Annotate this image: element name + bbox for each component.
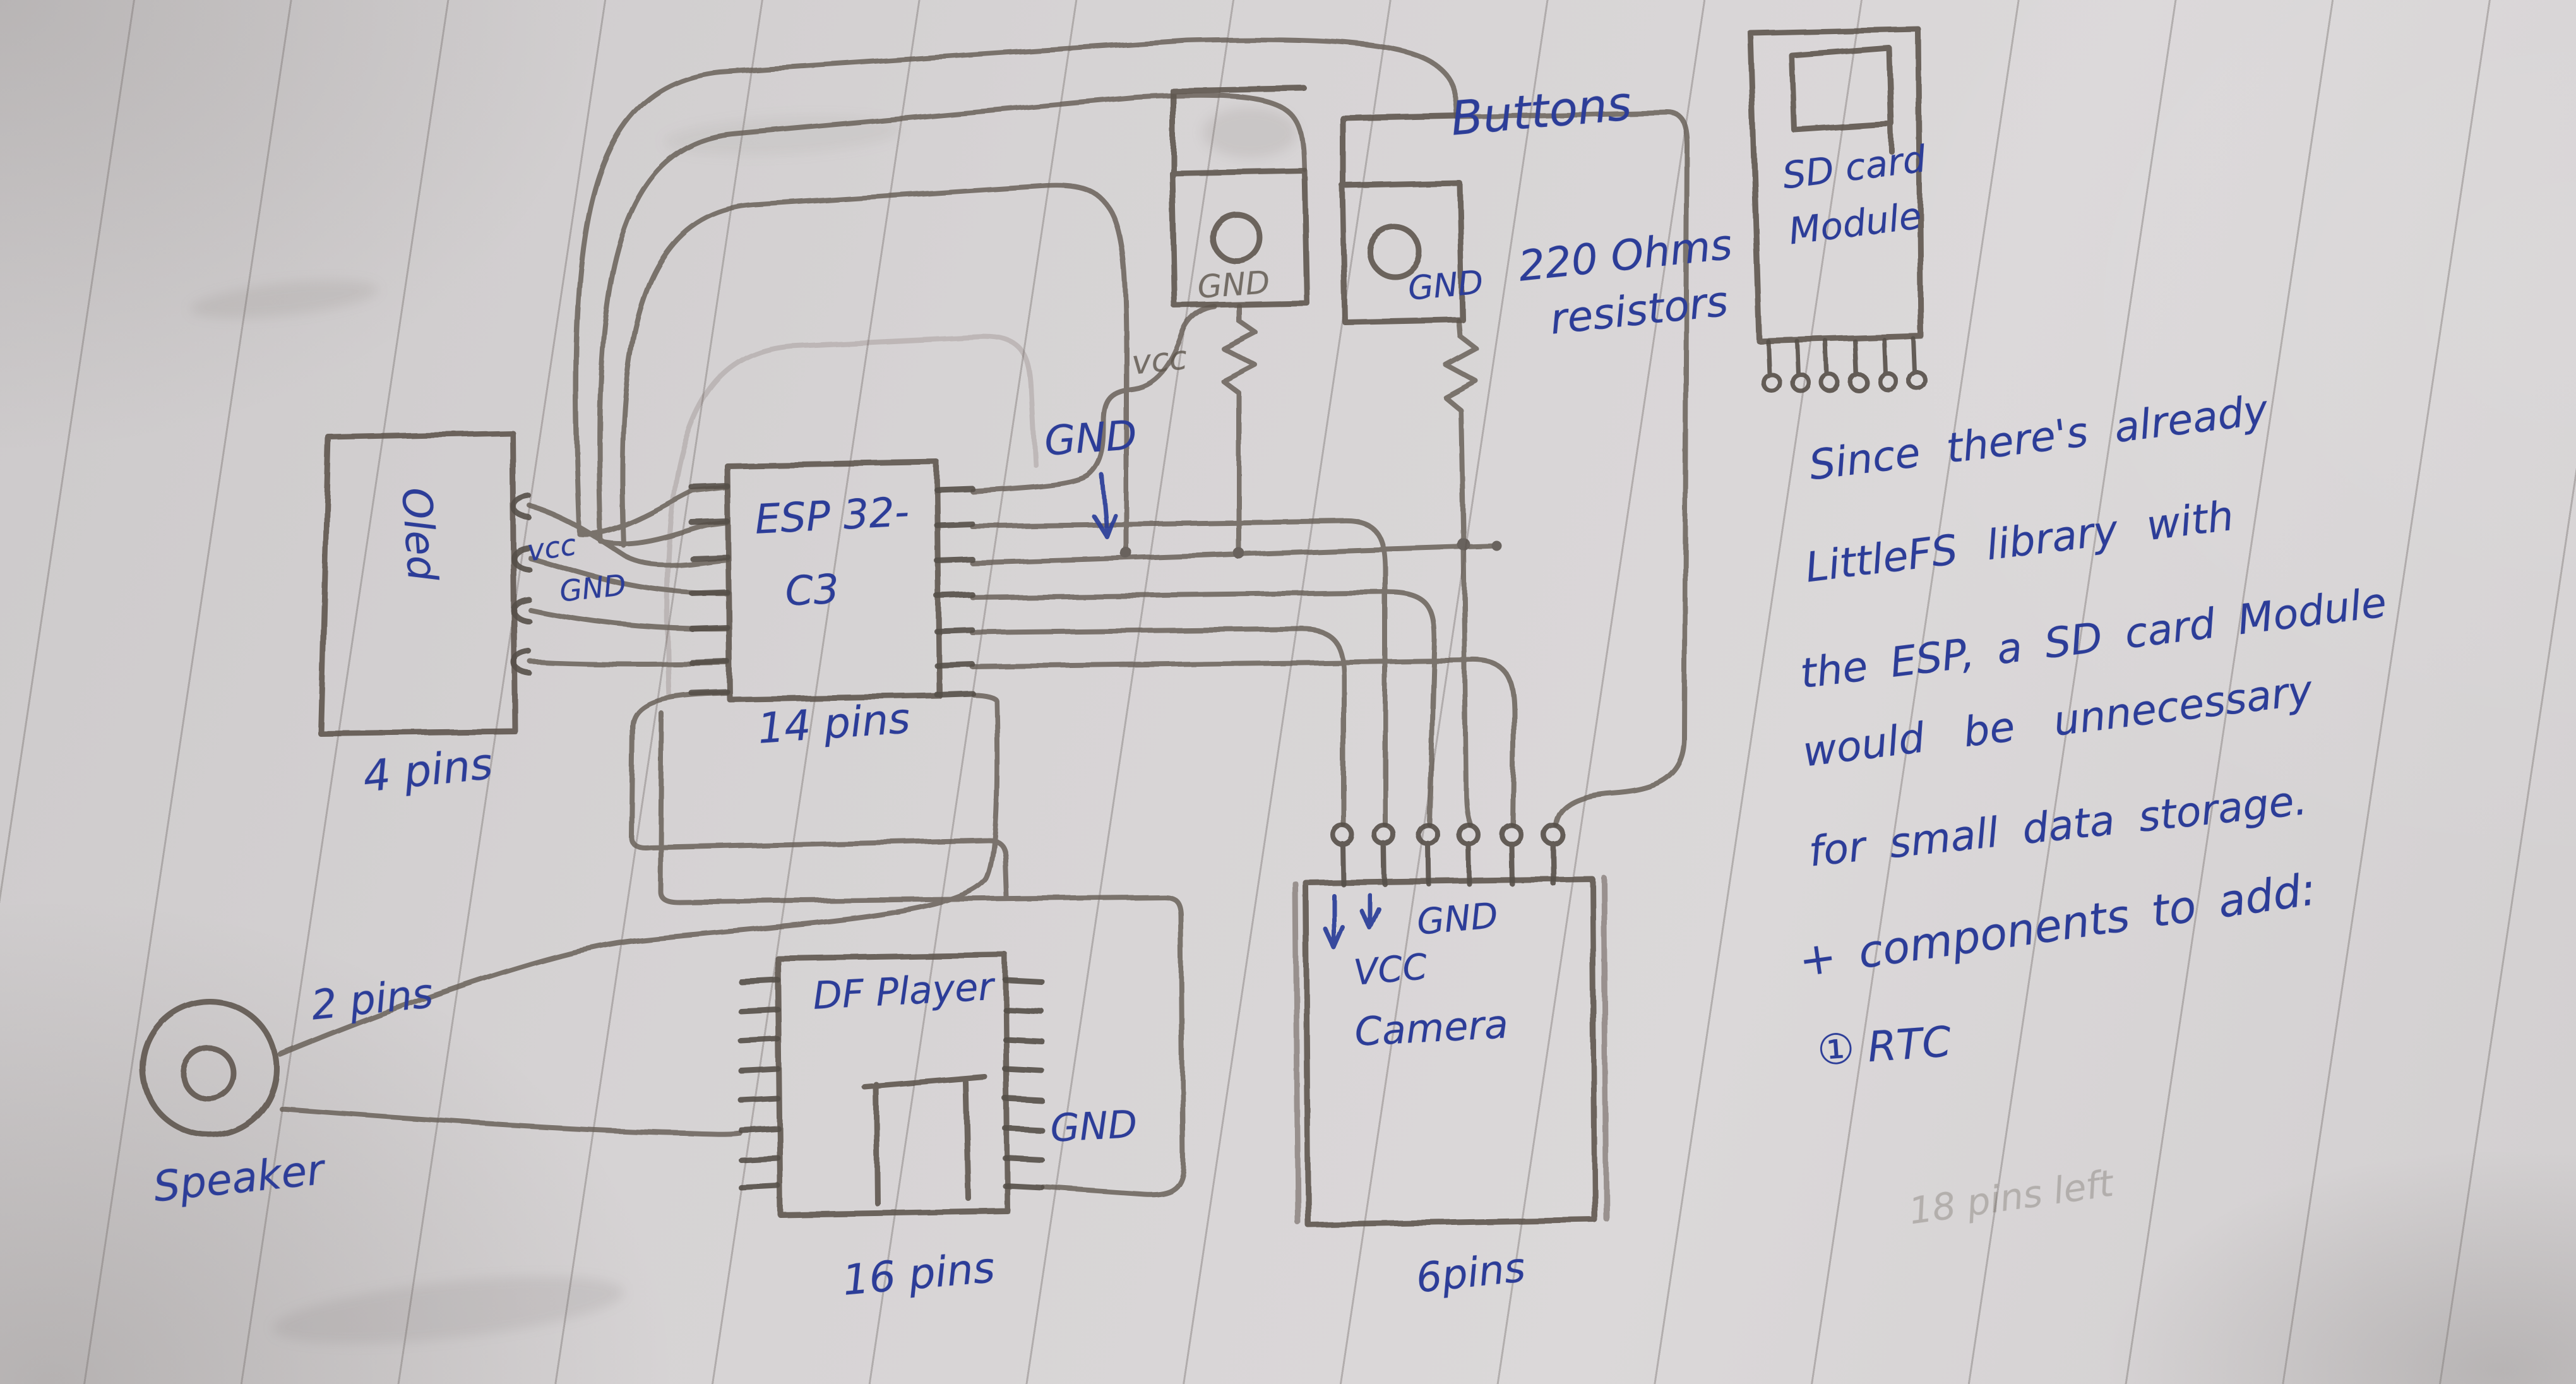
oled-gnd-label: GND (558, 570, 628, 606)
oled-pins-label: 4 pins (361, 743, 494, 799)
oled-box (321, 433, 515, 734)
button1-cap (1213, 214, 1260, 261)
wire-arc-outer (576, 40, 1457, 534)
wire-button1-resistor (1224, 306, 1255, 554)
speaker-outer (143, 1001, 277, 1135)
camera-gnd-arrow-icon (1325, 895, 1342, 947)
esp-label-line1: ESP 32- (754, 492, 910, 540)
wire (972, 522, 1385, 825)
camera-pins-label: 6pins (1414, 1248, 1527, 1299)
wire-vcc-feed (972, 307, 1215, 491)
esp-pins-label: 14 pins (756, 698, 911, 750)
camera-vcc-arrow-icon (1361, 895, 1379, 928)
button1-upper-frame (1173, 88, 1304, 173)
sd-card-slot (1792, 48, 1892, 152)
df-player-pins-label: 16 pins (841, 1247, 996, 1302)
camera-pins (1333, 825, 1563, 884)
oled-label: Oled (395, 486, 442, 582)
oled-vcc-label: vcc (525, 530, 578, 565)
wire (972, 629, 1344, 825)
wire-arc-2 (599, 95, 1304, 542)
sd-card-pins (1763, 338, 1925, 391)
vcc-label: vcc (1130, 342, 1189, 380)
wire (972, 592, 1434, 825)
camera-vcc-label: VCC (1352, 950, 1429, 991)
component-outlines (143, 29, 1921, 1225)
button2-gnd-label: GND (1407, 266, 1484, 306)
wire (1464, 544, 1470, 825)
notebook-sketch-page: Buttons 220 Ohms resistors GND GND Oled … (0, 0, 2576, 1384)
df-player-gnd-label: GND (1049, 1106, 1138, 1148)
button2-cap (1369, 227, 1419, 276)
button1-gnd-label: GND (1196, 266, 1271, 303)
wire-button2-resistor (1446, 321, 1476, 544)
camera-gnd-label: GND (1416, 898, 1500, 941)
additions-item-rtc: ① RTC (1816, 1021, 1952, 1072)
speaker-pins-label: 2 pins (309, 974, 435, 1027)
esp-right-pins (937, 489, 972, 695)
df-player-label: DF Player (812, 968, 994, 1015)
df-left-pins (741, 980, 778, 1188)
esp-left-pins (692, 486, 727, 693)
df-player-slot (865, 1077, 985, 1203)
gnd-rail-label: GND (1043, 415, 1138, 462)
esp-label-line2: C3 (784, 570, 840, 612)
speaker-inner (183, 1048, 234, 1099)
wire-right-sweep (1460, 112, 1687, 825)
wire-speaker-bottom (282, 1109, 740, 1134)
button2-upper-frame (1344, 116, 1460, 186)
camera-label: Camera (1354, 1005, 1509, 1052)
df-right-pins (1005, 980, 1042, 1188)
